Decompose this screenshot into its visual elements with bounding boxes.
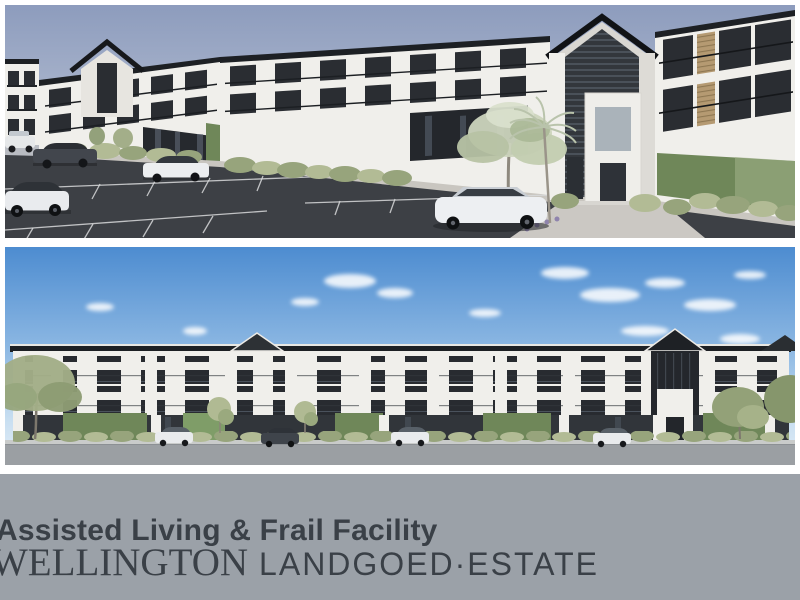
entrance-door xyxy=(567,157,583,199)
building-elevation xyxy=(10,329,795,443)
render-perspective-view: ♿ xyxy=(5,5,795,238)
property-listing-image: ♿ xyxy=(0,0,800,600)
building-right-wing xyxy=(655,10,795,223)
render-perspective-svg: ♿ xyxy=(5,5,795,238)
banner-title: WELLINGTONLANDGOED·ESTATE xyxy=(0,540,599,585)
banner-title-secondary: LANDGOED·ESTATE xyxy=(259,546,599,582)
banner-title-primary: WELLINGTON xyxy=(0,541,248,584)
road xyxy=(5,444,795,465)
render-elevation-view xyxy=(5,247,795,465)
render-elevation-svg xyxy=(5,247,795,465)
project-banner: Assisted Living & Frail Facility WELLING… xyxy=(0,474,800,600)
